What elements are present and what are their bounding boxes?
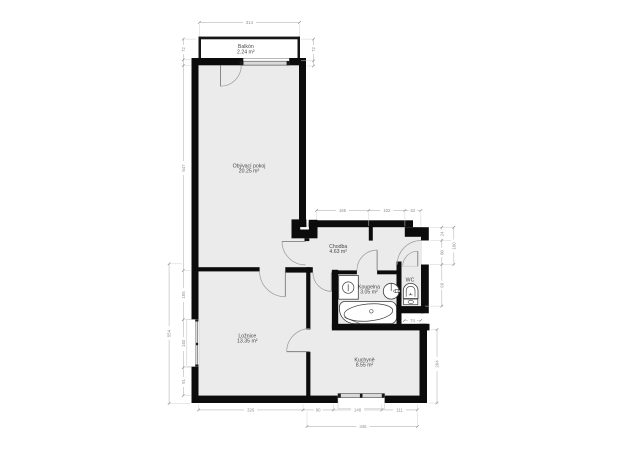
svg-text:165: 165 (339, 208, 347, 213)
svg-text:20.25 m²: 20.25 m² (239, 169, 260, 175)
svg-text:99: 99 (439, 282, 444, 287)
svg-text:52: 52 (411, 208, 416, 213)
svg-text:204: 204 (435, 360, 440, 368)
svg-text:111: 111 (396, 408, 403, 413)
svg-text:4.63 m²: 4.63 m² (329, 249, 347, 255)
svg-text:80: 80 (439, 250, 444, 255)
svg-text:345: 345 (359, 424, 367, 429)
svg-text:2.24 m²: 2.24 m² (237, 49, 255, 55)
svg-text:140: 140 (181, 339, 186, 347)
svg-text:314: 314 (246, 20, 254, 25)
svg-text:155: 155 (181, 291, 186, 299)
svg-text:74: 74 (410, 318, 415, 323)
svg-text:WC: WC (406, 278, 415, 284)
svg-text:148: 148 (354, 408, 362, 413)
svg-text:72: 72 (181, 47, 186, 52)
svg-text:3.05 m²: 3.05 m² (360, 290, 378, 296)
svg-text:8.55 m²: 8.55 m² (356, 363, 374, 369)
svg-text:91: 91 (181, 379, 186, 384)
svg-text:24: 24 (439, 231, 444, 236)
svg-text:326: 326 (247, 408, 255, 413)
svg-text:554: 554 (167, 329, 172, 337)
svg-text:100: 100 (451, 242, 456, 250)
svg-text:647: 647 (181, 164, 186, 172)
svg-text:72: 72 (311, 47, 316, 52)
svg-text:102: 102 (383, 208, 391, 213)
svg-text:13.35 m²: 13.35 m² (237, 339, 258, 345)
svg-text:90: 90 (316, 408, 321, 413)
